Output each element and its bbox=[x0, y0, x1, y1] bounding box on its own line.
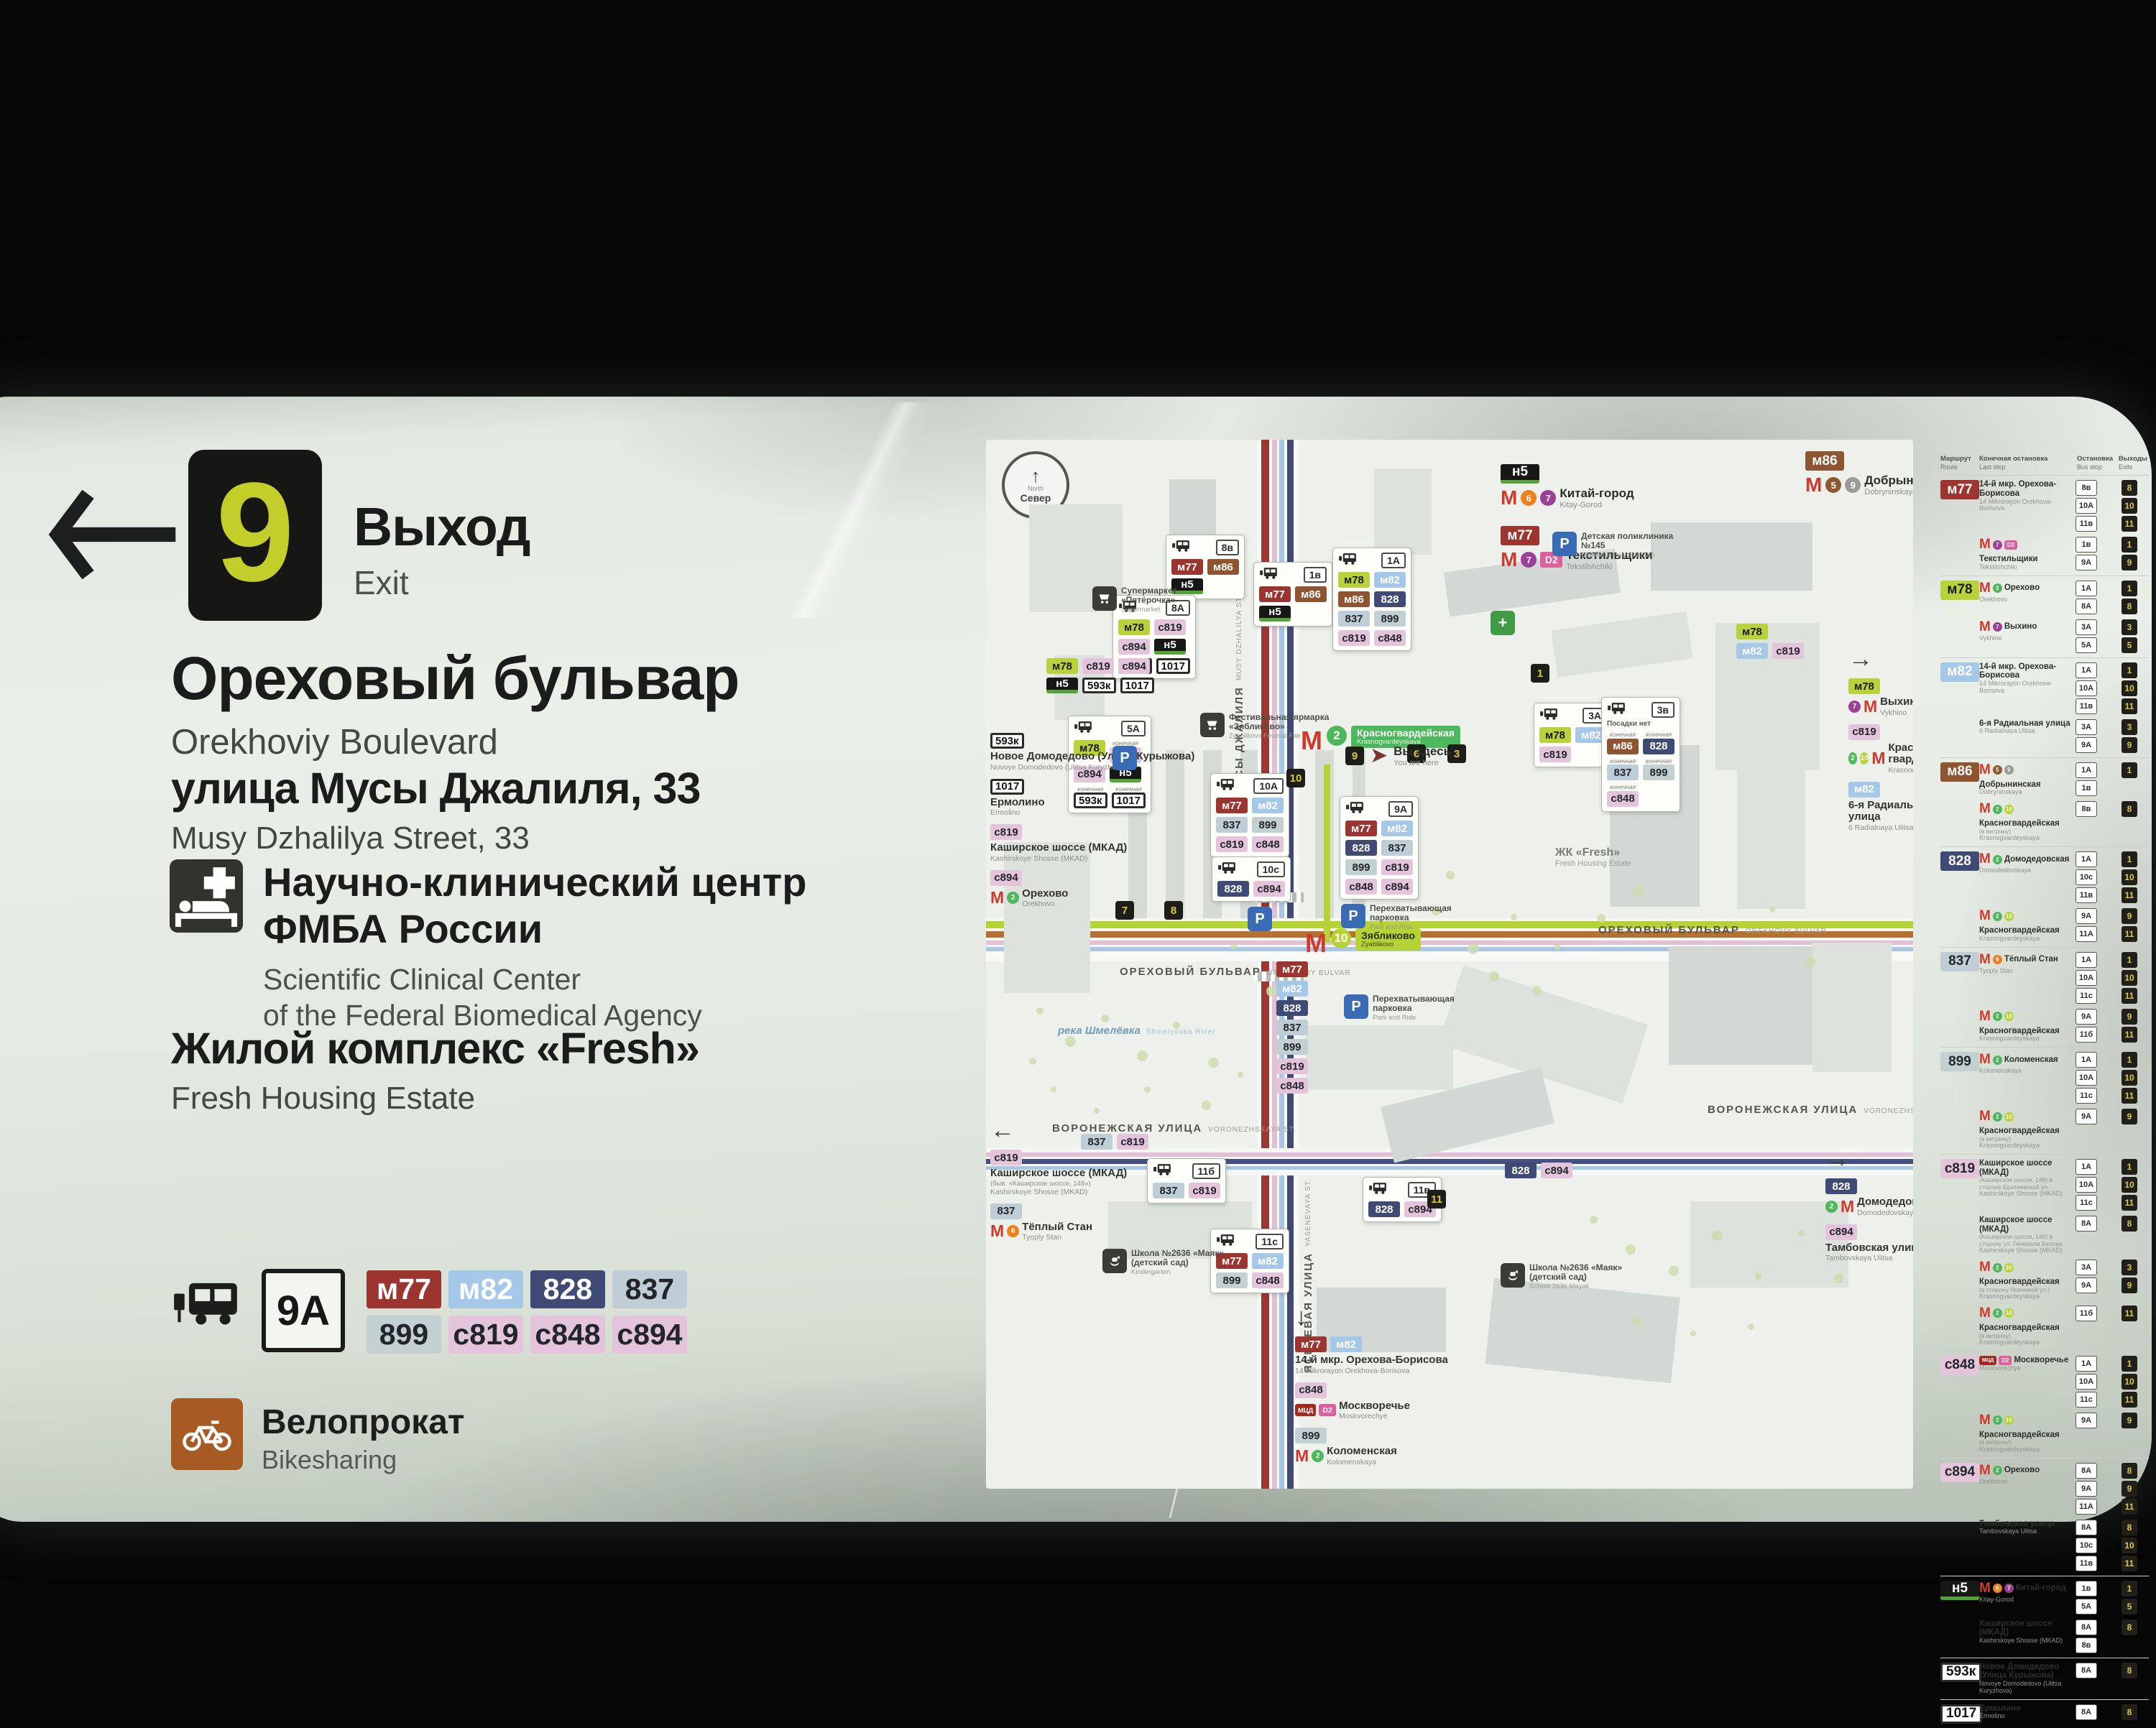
stop-code: 10с bbox=[1257, 861, 1285, 877]
poi-caption: Перехватывающая парковкаPark and Ride bbox=[1373, 994, 1480, 1022]
mrow: 14-й мкр. Орехова-Борисова bbox=[1979, 662, 2074, 680]
brow: с819 bbox=[990, 1150, 1127, 1165]
route-badge-с894: с894 bbox=[1253, 881, 1285, 897]
legend-dest: Каширское шоссе (МКАД)Kashirskoye Shosse… bbox=[1979, 1620, 2153, 1653]
stop-box-11А: 11А bbox=[2076, 1499, 2097, 1515]
route-badge-1017: 1017 bbox=[990, 779, 1024, 795]
exit-box-10: 10 bbox=[2122, 1070, 2137, 1086]
parking-icon: P bbox=[1248, 907, 1272, 931]
en: Krasnogvardeyskaya bbox=[1979, 1446, 2074, 1454]
route-badge-с894: с894 bbox=[1541, 1163, 1572, 1178]
ru: Ермолино bbox=[1979, 1704, 2021, 1714]
line-6-icon: 6 bbox=[1521, 490, 1537, 506]
prow: м77 bbox=[1276, 961, 1308, 977]
tree bbox=[1094, 1108, 1100, 1114]
terminal-badge: конечная899 bbox=[1643, 758, 1674, 781]
bus-icon bbox=[1216, 778, 1235, 794]
legend-dests: 14-й мкр. Орехова-Борисова14 Mikrorayon … bbox=[1979, 662, 2153, 753]
poi-p: P bbox=[1112, 746, 1137, 770]
prow: м78с819с894 bbox=[1046, 658, 1154, 674]
line-2-icon: 2 bbox=[1993, 1466, 2002, 1475]
stop-box-11в: 11в bbox=[2076, 516, 2097, 532]
stop-box-3А: 3А bbox=[2076, 1260, 2097, 1275]
route-badge-837: 837 bbox=[1940, 952, 1979, 971]
route-badge-837: 837 bbox=[1216, 817, 1248, 833]
mrow: М67Китай-город bbox=[1979, 1581, 2074, 1597]
tree bbox=[1029, 1058, 1036, 1065]
tree bbox=[1202, 1101, 1211, 1110]
brow: 899 bbox=[1295, 1428, 1448, 1443]
line-6-icon: 6 bbox=[1993, 955, 2002, 964]
route-badge-с819: с819 bbox=[1381, 859, 1413, 875]
street-route-badges: м77м82828837899с819с848 bbox=[1276, 961, 1308, 1094]
line-7-icon: 7 bbox=[2004, 1584, 2014, 1593]
route-badge-м77: м77 bbox=[1295, 1336, 1327, 1352]
route-badge-828: 828 bbox=[1505, 1163, 1537, 1178]
cart-icon bbox=[1092, 586, 1117, 611]
route-badge-м82: м82 bbox=[1381, 821, 1413, 836]
route-badge-м77: м77 bbox=[1259, 586, 1291, 602]
exit-box-8: 8 bbox=[2122, 801, 2137, 817]
en: Kashirskoye Shosse (MKAD) bbox=[990, 854, 1127, 863]
mrow: МЦДD2МоскворечьеMoskvorechye bbox=[1295, 1400, 1448, 1421]
dest-ru: Китай-город bbox=[1560, 486, 1634, 501]
line-7-icon: 7 bbox=[1848, 701, 1861, 713]
txt: Китай-городKitay-Gorod bbox=[1560, 486, 1634, 509]
edge-dest: 837М6Тёплый СтанTyoply Stan bbox=[990, 1203, 1127, 1242]
stop-box-1в: 1в bbox=[2076, 780, 2097, 796]
bus-icon bbox=[1539, 708, 1558, 724]
stop-box-8А: 8А bbox=[2076, 1704, 2097, 1720]
exit-box-3: 3 bbox=[2122, 1260, 2137, 1275]
destination-en: Fresh Housing Estate bbox=[171, 1081, 699, 1117]
legend-dests: М6Тёплый СтанTyoply Stan1А10А11с11011М21… bbox=[1979, 952, 2153, 1043]
exit-box-8: 8 bbox=[2122, 480, 2137, 496]
route-badge-с894: с894 bbox=[1118, 639, 1150, 655]
terminal-badge: конечнаяс848 bbox=[1607, 784, 1639, 807]
building bbox=[1690, 1201, 1848, 1288]
legend-dest-name: МЦДD2МоскворечьеMoskvorechye bbox=[1979, 1356, 2074, 1372]
bus-stop-plate-11б: 11б837с819 bbox=[1147, 1158, 1226, 1203]
exit-box-1: 1 bbox=[2122, 662, 2137, 678]
terminal-label: конечная bbox=[1610, 784, 1636, 790]
legend-route-badge-cell: 899 bbox=[1940, 1052, 1979, 1150]
legend-dest: М210Красногвардейская(в витрину)Krasnogv… bbox=[1979, 1306, 2153, 1346]
legend-dest: М210Красногвардейская(в витрину)Krasnogv… bbox=[1979, 1413, 2153, 1454]
line-2-icon: 2 bbox=[1993, 583, 2002, 593]
plate-row: м78м82 bbox=[1539, 727, 1607, 743]
stop-box-9А: 9А bbox=[2076, 908, 2097, 924]
en: Vykhino bbox=[1880, 708, 1913, 717]
route-badge-с819: с819 bbox=[1082, 658, 1114, 674]
legend-dest-name: М7ВыхиноVykhino bbox=[1979, 619, 2074, 642]
legend-route-badge-cell: с819 bbox=[1940, 1159, 1979, 1346]
brow: м86 bbox=[1805, 451, 1913, 471]
div: ЕрмолиноErmolino bbox=[990, 797, 1045, 818]
en: Kolomenskaya bbox=[1979, 1068, 2074, 1075]
route-badge-с819: с819 bbox=[1772, 643, 1804, 659]
route-badge-м82: м82 bbox=[1736, 643, 1768, 659]
ru: Каширское шоссе (МКАД) bbox=[990, 1168, 1127, 1180]
tree bbox=[1238, 1072, 1243, 1078]
en: Krasnogvardeyskaya bbox=[1979, 1293, 2074, 1300]
exit-box-8: 8 bbox=[2122, 1520, 2137, 1535]
route-badge-с894: с894 bbox=[1825, 1224, 1857, 1240]
metro-m-icon: М bbox=[1979, 762, 1991, 778]
exit-words: Выход Exit bbox=[354, 496, 530, 602]
bus-icon bbox=[1338, 553, 1357, 568]
tree bbox=[1266, 986, 1277, 997]
mrow: Тамбовская улицаTambovskaya Ulitsa bbox=[1825, 1242, 1913, 1263]
cart-icon bbox=[1200, 713, 1225, 737]
plate-row: конечнаям86конечная828 bbox=[1607, 731, 1674, 754]
legend-route-badge-cell: м82 bbox=[1940, 662, 1979, 753]
legend-dest: ЕрмолиноErmolino8А8 bbox=[1979, 1704, 2153, 1721]
dest-en: Kitay-Gorod bbox=[1560, 501, 1634, 509]
tree bbox=[1590, 1216, 1598, 1224]
legend-row-828: 828М2ДомодедовскаяDomodedovskaya1А10с11в… bbox=[1940, 846, 2149, 947]
route-badge-с894: с894 bbox=[1381, 879, 1413, 895]
exit-box-11: 11 bbox=[2122, 698, 2137, 714]
stop-code: 8в bbox=[1216, 540, 1239, 555]
prow: с819 bbox=[1276, 1058, 1308, 1074]
line-2-icon: 2 bbox=[1312, 1450, 1324, 1462]
tree bbox=[1755, 1273, 1761, 1280]
brow: 837 bbox=[990, 1203, 1127, 1219]
terminal-label: конечная bbox=[1646, 758, 1672, 764]
metro-m-icon: М bbox=[990, 888, 1004, 907]
line-2-icon: 2 bbox=[1993, 1308, 2002, 1318]
tree bbox=[1532, 986, 1542, 995]
route-badge-м86: м86 bbox=[1940, 762, 1979, 782]
legend-stops: 3А9А bbox=[2076, 1260, 2120, 1293]
en: 14 Mikrorayon Orekhova-Borisova bbox=[1979, 680, 2074, 695]
mrow: М67Китай-городKitay-Gorod bbox=[1501, 486, 1634, 509]
stop-box-1А: 1А bbox=[2076, 1052, 2097, 1068]
edge-dest: с848МЦДD2МоскворечьеMoskvorechye bbox=[1295, 1382, 1448, 1421]
route-badge-м86: м86 bbox=[1338, 591, 1370, 607]
bikesharing-row: Велопрокат Bikesharing bbox=[171, 1398, 464, 1475]
edge-dest: 1017ЕрмолиноErmolino bbox=[990, 779, 1194, 818]
tree bbox=[1798, 1230, 1805, 1237]
prow: н5593к1017 bbox=[1046, 678, 1154, 693]
exit-word-ru: Выход bbox=[354, 496, 530, 558]
metro-m-icon: М bbox=[1871, 749, 1885, 768]
plate-row: 828837 bbox=[1345, 840, 1413, 856]
plate-header: 8в bbox=[1171, 540, 1239, 555]
ru: Домодедовская bbox=[2004, 855, 2070, 864]
legend-exits: 11011 bbox=[2122, 952, 2153, 1004]
legend-exits: 18 bbox=[2122, 581, 2153, 614]
route-badge-с848: с848 bbox=[1374, 630, 1406, 646]
div: 6-я Радиальная улица6 Radialnaya Ulitsa bbox=[1848, 800, 1913, 832]
ru: Красногвардейская bbox=[1979, 1323, 2060, 1333]
legend-dest-name: М210КрасногвардейскаяKrasnogvardeyskaya bbox=[1979, 908, 2074, 943]
ru: Тёплый Стан bbox=[2004, 955, 2058, 964]
bikesharing-en: Bikesharing bbox=[262, 1445, 464, 1475]
legend-stops: 3А5А bbox=[2076, 619, 2120, 653]
route-badge-899: 899 bbox=[1252, 817, 1284, 833]
plate-row: конечнаяс848 bbox=[1607, 784, 1674, 807]
prow: м78 bbox=[1736, 624, 1804, 639]
exit-box-11: 11 bbox=[2122, 1027, 2137, 1043]
plate-row: м78с819 bbox=[1118, 619, 1190, 635]
legend-stops: 8в10А11в bbox=[2076, 480, 2120, 532]
mrow: Новое Домодедово (Улица Курыжова)Novoye … bbox=[990, 751, 1194, 772]
legend-dest-name: 14-й мкр. Орехова-Борисова14 Mikrorayon … bbox=[1979, 662, 2074, 695]
route-badge-837: 837 bbox=[1338, 611, 1370, 627]
exit-box-8: 8 bbox=[2122, 1216, 2137, 1232]
prow: 828 bbox=[1276, 1000, 1308, 1016]
plate-header: 3в bbox=[1607, 702, 1674, 718]
edge-arrow-icon: ← bbox=[990, 1118, 1127, 1142]
metro-m-icon: М bbox=[990, 1221, 1004, 1241]
tree bbox=[1468, 943, 1479, 954]
legend-stops: 1А10А11с bbox=[2076, 952, 2120, 1004]
exit-box-9: 9 bbox=[2122, 1277, 2137, 1293]
line-10-icon: 10 bbox=[2004, 1112, 2014, 1122]
route-badge-с819: с819 bbox=[1216, 836, 1248, 852]
edge-dest: м77м8214-й мкр. Орехова-Борисова14 Mikro… bbox=[1295, 1336, 1448, 1375]
stop-box-11А: 11А bbox=[2076, 926, 2097, 942]
en: Park and Ride bbox=[1373, 1014, 1480, 1022]
route-badge-м78: м78 bbox=[1046, 658, 1078, 674]
en: Krasnogvardeyskaya bbox=[1888, 766, 1913, 775]
metro-m-icon: М bbox=[1864, 697, 1877, 716]
exit-box-1: 1 bbox=[2122, 952, 2137, 968]
mcd-icon: МЦД bbox=[1295, 1404, 1316, 1416]
ru: Детская поликлиника №145 bbox=[1581, 532, 1689, 551]
route-badge-м78: м78 bbox=[1118, 619, 1150, 635]
line-2-icon: 2 bbox=[1993, 1112, 2002, 1122]
bus-icon bbox=[1171, 540, 1190, 555]
route-badge-с819: с819 bbox=[1848, 724, 1880, 740]
stop-box-9А: 9А bbox=[2076, 1277, 2097, 1293]
edge-destinations: ↓м77м8214-й мкр. Орехова-Борисова14 Mikr… bbox=[1295, 1305, 1448, 1466]
edge-dest: с894Тамбовская улицаTambovskaya Ulitsa bbox=[1825, 1224, 1913, 1263]
stop-box-9А: 9А bbox=[2076, 1413, 2097, 1428]
exit-number: 9 bbox=[216, 462, 294, 603]
destination-en: Orekhoviy Boulevard bbox=[171, 722, 740, 762]
legend-stops: 3А9А bbox=[2076, 719, 2120, 753]
building bbox=[1551, 611, 1692, 678]
ru: Тамбовская улица bbox=[1825, 1242, 1913, 1255]
route-badge-с894: с894 bbox=[990, 870, 1022, 886]
line-2-icon: 2 bbox=[1993, 1263, 2002, 1272]
mrow: 210МКрасно-гвардейскаяKrasnogvardeyskaya bbox=[1848, 742, 1913, 775]
route-badge-828: 828 bbox=[1825, 1178, 1857, 1194]
legend-dest: М210КрасногвардейскаяKrasnogvardeyskaya9… bbox=[1979, 1009, 2153, 1043]
ru: Орехово bbox=[2004, 1466, 2040, 1475]
route-badge-м82: м82 bbox=[1252, 1253, 1284, 1269]
exit-box-10: 10 bbox=[2122, 1374, 2137, 1390]
legend-dest: М6Тёплый СтанTyoply Stan1А10А11с11011 bbox=[1979, 952, 2153, 1004]
plate-row: м77м86 bbox=[1259, 586, 1327, 602]
legend-route-badge-cell: 828 bbox=[1940, 851, 1979, 943]
route-badge-м78: м78 bbox=[1940, 581, 1979, 600]
legend-stops: 1А10А11с bbox=[2076, 1159, 2120, 1211]
legend-dest: М67Китай-городKitay-Gorod1в5А15 bbox=[1979, 1581, 2153, 1614]
poi-caption: Детская поликлиника №145Children's Polyc… bbox=[1581, 532, 1689, 559]
parking-icon: P bbox=[1112, 746, 1137, 770]
terminal-label: конечная bbox=[1610, 731, 1636, 738]
legend-dest-name: М7D2ТекстильщикиTekstilshchiki bbox=[1979, 537, 2074, 571]
street-en: MUSY DZHALILYA ST. bbox=[1235, 595, 1243, 680]
destination-ru: Научно-клинический центр ФМБА России bbox=[263, 859, 806, 953]
div: Каширское шоссе (МКАД)Kashirskoye Shosse… bbox=[990, 842, 1127, 863]
legend-exits: 8 bbox=[2122, 1663, 2153, 1678]
route-badge-828: 828 bbox=[1276, 1000, 1308, 1016]
stop-box-9А: 9А bbox=[2076, 1109, 2097, 1124]
direction-arrow-left-icon bbox=[47, 489, 183, 584]
tree bbox=[1626, 1244, 1636, 1255]
legend-exits: 81011 bbox=[2122, 480, 2153, 532]
brow: с894 bbox=[1825, 1224, 1913, 1240]
exit-box-9: 9 bbox=[2122, 1009, 2137, 1025]
prow: м82 bbox=[1276, 981, 1308, 997]
route-badge-м77: м77 bbox=[1216, 798, 1248, 813]
metro-m-icon: М bbox=[1805, 473, 1822, 496]
route-badge-593к: 593к bbox=[1940, 1663, 1981, 1682]
line-2-icon: 2 bbox=[1993, 805, 2002, 814]
metro-m-icon: М bbox=[1979, 801, 1991, 817]
route-badge-с848: с848 bbox=[530, 1316, 605, 1354]
metro-m-icon: М bbox=[1979, 537, 1991, 553]
route-badge-с819: с819 bbox=[1276, 1058, 1308, 1074]
exit-box-8: 8 bbox=[2122, 1663, 2137, 1678]
mrow: М59ДобрынинскаяDobryninskaya bbox=[1805, 473, 1913, 496]
route-badge-м78: м78 bbox=[1848, 678, 1880, 694]
div: ДомодедовскаяDomodedovskaya bbox=[1857, 1196, 1913, 1217]
route-badge-с894: с894 bbox=[1940, 1463, 1979, 1482]
street-en: Shmelyovka River bbox=[1146, 1028, 1216, 1036]
stop-code-9a: 9А bbox=[262, 1269, 345, 1352]
street-en: VORONEZHSKAYA ST. bbox=[1208, 1126, 1296, 1134]
clinic-icon: P bbox=[1552, 532, 1577, 556]
legend-exits: 81011 bbox=[2122, 1520, 2153, 1571]
stop-code: 9А bbox=[1388, 801, 1413, 817]
stop-box-8А: 8А bbox=[2076, 1463, 2097, 1479]
plate-row: с819 bbox=[1539, 747, 1607, 762]
bus-icon bbox=[1217, 861, 1236, 877]
route-badge-м82: м82 bbox=[1330, 1336, 1362, 1352]
stop-box-11с: 11с bbox=[2076, 988, 2097, 1004]
exit-box-11: 11 bbox=[2122, 1195, 2137, 1211]
legend-dest-name: М2ОреховоOrekhovo bbox=[1979, 1463, 2074, 1486]
station-ru: Красногвардейская bbox=[1357, 728, 1455, 739]
stop-box-10с: 10с bbox=[2076, 869, 2097, 885]
en: Park and Ride bbox=[1370, 923, 1478, 931]
en: Kindergarten bbox=[1131, 1268, 1239, 1276]
en: Moskvorechye bbox=[1339, 1412, 1410, 1420]
line-2-icon: 2 bbox=[1993, 1055, 2002, 1065]
street-ru: ОРЕХОВЫЙ БУЛЬВАР bbox=[1598, 924, 1740, 936]
poi-school: Школа №2636 «Маяк» (детский сад)School 2… bbox=[1501, 1263, 1637, 1290]
brow: м78 bbox=[1848, 678, 1913, 694]
div: 14-й мкр. Орехова-Борисова14 Mikrorayon … bbox=[1295, 1354, 1448, 1375]
stop-box-1А: 1А bbox=[2076, 1356, 2097, 1372]
ru: Школа №2636 «Маяк» (детский сад) bbox=[1131, 1249, 1239, 1268]
exit-box-11: 11 bbox=[2122, 1556, 2137, 1571]
destination-en: Musy Dzhalilya Street, 33 bbox=[171, 821, 700, 856]
line-6-icon: 6 bbox=[1993, 1584, 2002, 1593]
plate-row: м86828 bbox=[1338, 591, 1406, 607]
dest-ru: Добрынинская bbox=[1864, 473, 1913, 488]
tree bbox=[1489, 971, 1499, 981]
edge-dest: с819Каширское шоссе (МКАД)(быв. «Каширск… bbox=[990, 1150, 1127, 1196]
legend-dest: 6-я Радиальная улица6 Radialnaya Ulitsa3… bbox=[1979, 719, 2153, 753]
stop-box-10А: 10А bbox=[2076, 970, 2097, 986]
poi-caption: Перехватывающая парковкаPark and Ride bbox=[1370, 904, 1478, 931]
edge-dest: с819Каширское шоссе (МКАД)Kashirskoye Sh… bbox=[990, 824, 1194, 863]
stop-box-10А: 10А bbox=[2076, 680, 2097, 696]
en: Vykhino bbox=[1979, 635, 2074, 642]
route-badge-м82: м82 bbox=[1940, 662, 1979, 682]
route-badge-с819: с819 bbox=[1539, 747, 1571, 762]
building bbox=[1737, 747, 1805, 909]
legend-dest: Каширское шоссе (МКАД)(Каширское шоссе, … bbox=[1979, 1159, 2153, 1211]
route-badge-н5: н5 bbox=[1154, 639, 1186, 655]
street-route-badges: м78с819с894н5593к1017 bbox=[1046, 658, 1154, 693]
exit-box-11: 11 bbox=[2122, 1088, 2137, 1104]
route-badge-1017: 1017 bbox=[1940, 1704, 1982, 1724]
div: МоскворечьеMoskvorechye bbox=[1339, 1400, 1410, 1421]
ru: 14-й мкр. Орехова-Борисова bbox=[1979, 480, 2074, 498]
mrow: М2Коломенская bbox=[1979, 1052, 2074, 1068]
legend-row-837: 837М6Тёплый СтанTyoply Stan1А10А11с11011… bbox=[1940, 947, 2149, 1048]
stop-box-10А: 10А bbox=[2076, 1070, 2097, 1086]
metro-m-icon: М bbox=[1979, 581, 1991, 596]
ru: Тёплый Стан bbox=[1022, 1221, 1092, 1234]
legend-stops: 1А10А11с bbox=[2076, 1356, 2120, 1408]
line-7-icon: 7 bbox=[1521, 552, 1537, 568]
pharmacy-cross-icon: + bbox=[1491, 611, 1515, 635]
tree bbox=[1209, 1058, 1219, 1068]
en: Krasnogvardeyskaya bbox=[1979, 1339, 2074, 1346]
stop-code: 1в bbox=[1304, 567, 1327, 583]
plate-row: 828с894 bbox=[1368, 1201, 1436, 1217]
bus-stop-plate-1А: 1Ам78м82м86828837899с819с848 bbox=[1332, 547, 1411, 651]
legend-stops: 8А bbox=[2076, 1216, 2120, 1232]
mrow: М2КоломенскаяKolomenskaya bbox=[1295, 1446, 1448, 1466]
brow: с819 bbox=[1848, 724, 1913, 740]
route-badge-м86: м86 bbox=[1805, 451, 1844, 471]
route-badge-899: 899 bbox=[1374, 611, 1406, 627]
route-badge-м82: м82 bbox=[1276, 981, 1308, 997]
exit-box-11: 11 bbox=[2122, 1392, 2137, 1408]
stop-box-11в: 11в bbox=[2076, 1556, 2097, 1571]
exit-box-11: 11 bbox=[2122, 988, 2137, 1004]
legend-route-badge-cell: 837 bbox=[1940, 952, 1979, 1043]
mrow: Каширское шоссе (МКАД) bbox=[1979, 1620, 2074, 1637]
legend-exits: 11011 bbox=[2122, 1159, 2153, 1211]
edge-dest: м826-я Радиальная улица6 Radialnaya Ulit… bbox=[1848, 782, 1913, 832]
route-badge-м77: м77 bbox=[1276, 961, 1308, 977]
plate-header: 9А bbox=[1345, 801, 1413, 817]
poi-label: ЖК «Fresh»Fresh Housing Estate bbox=[1555, 846, 1631, 868]
route-badge-с848: с848 bbox=[1252, 836, 1284, 852]
metro-m-icon: М bbox=[1305, 928, 1327, 958]
route-badge-837: 837 bbox=[1276, 1020, 1308, 1035]
div: Красно-гвардейскаяKrasnogvardeyskaya bbox=[1888, 742, 1913, 775]
route-badge-с819: с819 bbox=[1189, 1183, 1220, 1198]
stop-box-11б: 11б bbox=[2076, 1306, 2097, 1321]
legend-dest-name: Каширское шоссе (МКАД)(Каширское шоссе, … bbox=[1979, 1216, 2074, 1255]
route-badge-м82: м82 bbox=[1252, 798, 1284, 813]
legend-stops: 8в bbox=[2076, 801, 2120, 817]
legend-dest: М7D2ТекстильщикиTekstilshchiki1в9А19 bbox=[1979, 537, 2153, 571]
stop-box-10А: 10А bbox=[2076, 498, 2097, 514]
